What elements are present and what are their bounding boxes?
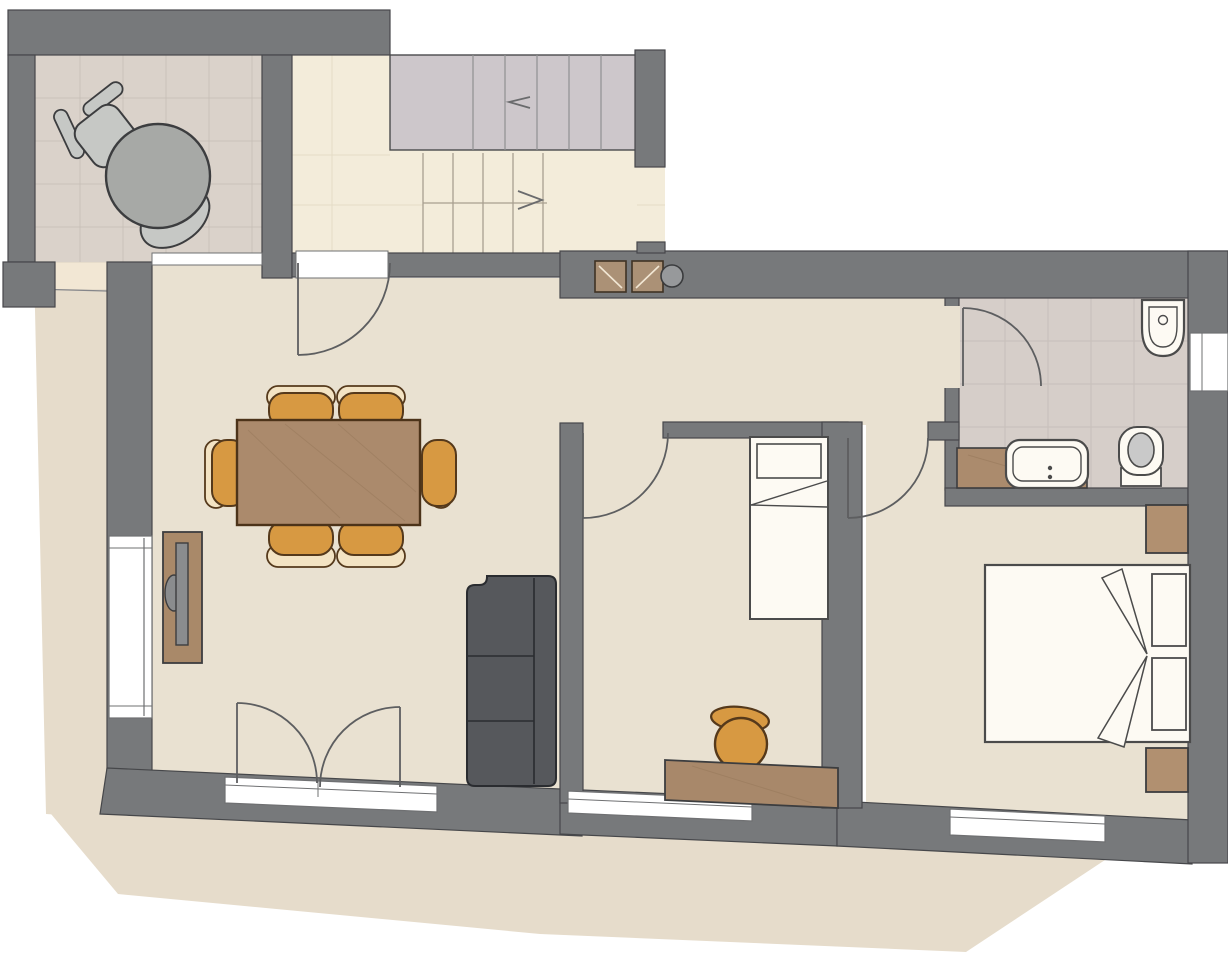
balcony-window <box>152 253 262 265</box>
bathroom-door-opening <box>944 306 960 388</box>
floor-plan-canvas <box>0 0 1228 976</box>
dining-table <box>237 420 420 525</box>
double-bed-pillow-2 <box>1152 658 1186 730</box>
tv-sideboard-group <box>163 532 202 663</box>
dining-chair <box>422 440 456 506</box>
sofa-group <box>467 576 556 786</box>
bidet <box>1142 300 1184 356</box>
single-bed-pillow <box>757 444 821 478</box>
wall-bathroom-bottom <box>945 488 1188 506</box>
wall-stub-left <box>3 262 55 307</box>
balcony-round-table <box>106 124 210 228</box>
wall-top-exterior <box>8 10 390 55</box>
toilet <box>1119 427 1163 486</box>
wall-balcony-right <box>262 55 292 278</box>
toilet-bowl <box>1128 433 1154 467</box>
wall-stairwell-right <box>635 50 665 167</box>
column <box>661 265 683 287</box>
wall-living-bedroom-partition <box>560 423 583 803</box>
wall-bedrooms-top <box>663 422 848 438</box>
wall-balcony-left <box>8 55 35 262</box>
left-window <box>109 536 152 718</box>
sofa <box>467 576 556 786</box>
entry-door-threshold <box>296 251 388 278</box>
wall-stairwell-step <box>637 242 665 253</box>
exterior-walkway-left <box>32 262 107 818</box>
nightstand-bottom <box>1146 748 1188 792</box>
double-bed-pillow-1 <box>1152 574 1186 646</box>
wall-embedded-items <box>595 261 683 292</box>
floor-plan-page <box>0 0 1228 976</box>
tv-screen <box>176 543 188 645</box>
washbasin <box>1006 440 1088 488</box>
wall-stub-master-door <box>928 422 959 440</box>
nightstand-top <box>1146 505 1188 553</box>
bathroom-window <box>1190 333 1228 391</box>
